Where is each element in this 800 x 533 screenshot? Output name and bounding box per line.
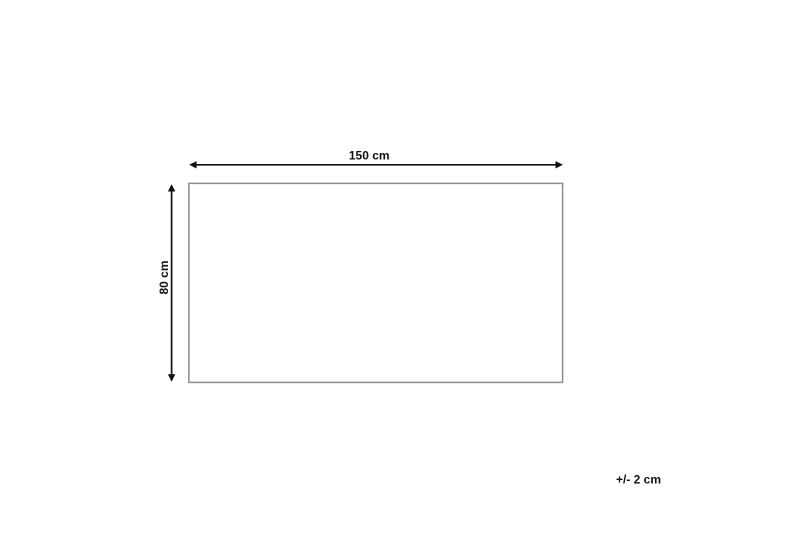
svg-text:80 cm: 80 cm	[157, 260, 171, 294]
svg-text:+/- 2 cm: +/- 2 cm	[616, 473, 661, 487]
svg-text:150 cm: 150 cm	[349, 148, 390, 162]
